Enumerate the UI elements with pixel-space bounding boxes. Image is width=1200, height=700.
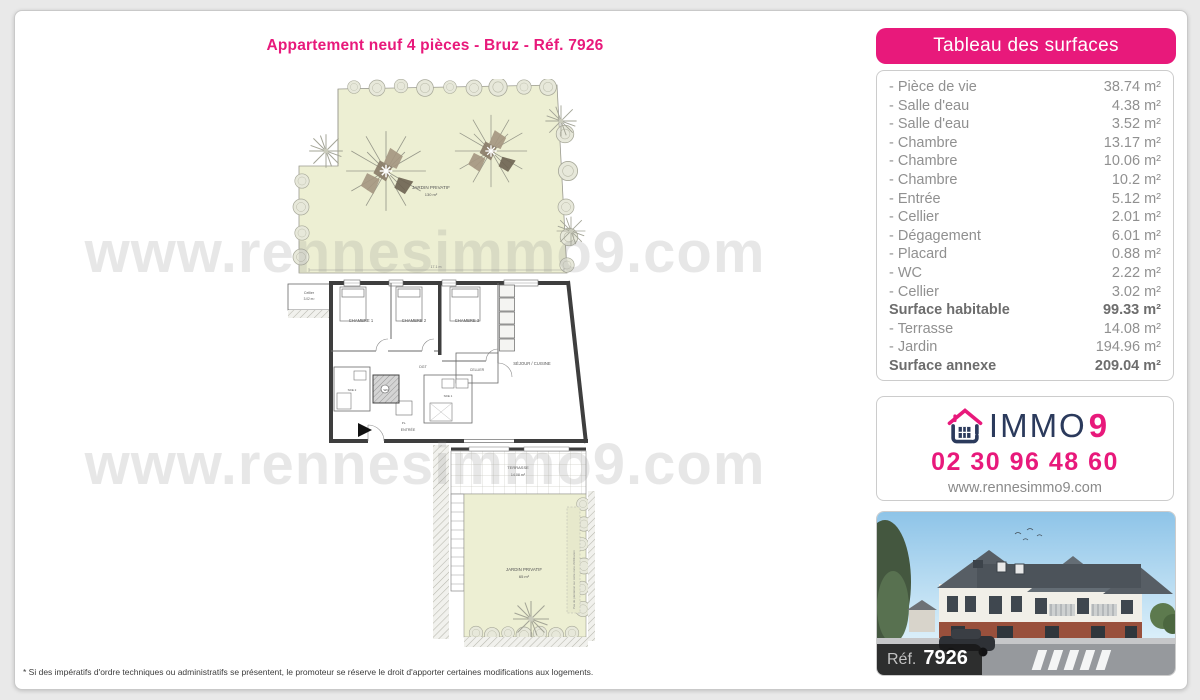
brand-name: IMMO — [989, 407, 1087, 445]
page-card: Appartement neuf 4 pièces - Bruz - Réf. … — [14, 10, 1188, 690]
plan-walkway — [433, 445, 449, 639]
surface-row-label: - Cellier — [889, 208, 939, 227]
surfaces-list: - Pièce de vie38.74 m²- Salle d'eau4.38 … — [889, 78, 1161, 376]
contact-card: IMMO 9 02 30 96 48 60 www.rennesimmo9.co… — [876, 396, 1174, 501]
room-label-entree: ENTRÉE — [401, 427, 416, 432]
garden-note-vertical: Pas de plantation sur cette zone d'infil… — [572, 550, 576, 609]
cellier-ext-area: 3.02 m² — [304, 297, 315, 301]
surface-row-label: - Placard — [889, 245, 947, 264]
surface-row: - Jardin194.96 m² — [889, 338, 1161, 357]
surface-row-label: - Cellier — [889, 283, 939, 302]
surface-row: - Chambre10.06 m² — [889, 152, 1161, 171]
surface-row-value: 0.88 m² — [1112, 245, 1161, 264]
surface-row-value: 2.01 m² — [1112, 208, 1161, 227]
surface-row-value: 3.02 m² — [1112, 283, 1161, 302]
surface-row-value: 2.22 m² — [1112, 264, 1161, 283]
surface-row-label: - Terrasse — [889, 320, 953, 339]
terrace-label: TERRASSE — [507, 465, 529, 470]
surface-row: Surface annexe209.04 m² — [889, 357, 1161, 376]
garden-top-label: JARDIN PRIVATIF — [412, 185, 450, 190]
surface-row: - Pièce de vie38.74 m² — [889, 78, 1161, 97]
room-label-chambre3: CHAMBRE 3 — [455, 318, 480, 323]
surface-row-label: - Entrée — [889, 190, 941, 209]
surfaces-header: Tableau des surfaces — [876, 28, 1176, 64]
ref-badge: Réf. 7926 — [877, 644, 982, 675]
room-label-placard: PL. — [402, 421, 407, 425]
surface-row-value: 3.52 m² — [1112, 115, 1161, 134]
surface-row: - Placard0.88 m² — [889, 245, 1161, 264]
garden-dim: 17.1 m — [431, 265, 442, 269]
terrace-area: 14.08 m² — [511, 473, 526, 477]
surface-row-label: Surface annexe — [889, 357, 996, 376]
room-label-wc: WC — [384, 388, 390, 392]
brand-logo: IMMO 9 — [877, 405, 1173, 447]
plan-garden-top: JARDIN PRIVATIF 130 m² 17.1 m — [293, 79, 585, 273]
surface-row-value: 10.06 m² — [1104, 152, 1161, 171]
garden-top-area: 130 m² — [425, 192, 438, 197]
surface-row-value: 10.2 m² — [1112, 171, 1161, 190]
building-photo: Réf. 7926 — [876, 511, 1176, 676]
surface-row: - Chambre10.2 m² — [889, 171, 1161, 190]
surface-row: - Terrasse14.08 m² — [889, 320, 1161, 339]
plan-apartment: CHAMBRE 1 CHAMBRE 2 CHAMBRE 3 DGT CELLIE… — [329, 280, 588, 443]
plan-cellier-ext: Cellier 3.02 m² — [288, 284, 331, 318]
phone-number[interactable]: 02 30 96 48 60 — [877, 448, 1173, 477]
surface-row-label: - Chambre — [889, 152, 958, 171]
surface-row-label: - Salle d'eau — [889, 97, 969, 116]
surface-row-value: 99.33 m² — [1103, 301, 1161, 320]
house-logo-icon — [943, 405, 987, 447]
surface-row-value: 4.38 m² — [1112, 97, 1161, 116]
surface-row-label: - WC — [889, 264, 922, 283]
surface-row-label: - Chambre — [889, 134, 958, 153]
surface-row: - Salle d'eau3.52 m² — [889, 115, 1161, 134]
page-title: Appartement neuf 4 pièces - Bruz - Réf. … — [15, 37, 855, 55]
room-label-sde2: SDE 2 — [348, 388, 357, 392]
room-label-cellier: CELLIER — [470, 368, 485, 372]
plan-stairs — [451, 494, 464, 591]
surface-row-value: 38.74 m² — [1104, 78, 1161, 97]
plan-garden-bottom: JARDIN PRIVATIF 65 m² Pas de plantation … — [464, 491, 595, 647]
room-label-dgt: DGT — [419, 365, 427, 369]
ref-label: Réf. — [887, 651, 916, 669]
garden-bottom-label: JARDIN PRIVATIF — [506, 567, 543, 572]
surface-row-value: 209.04 m² — [1095, 357, 1161, 376]
room-label-chambre1: CHAMBRE 1 — [349, 318, 374, 323]
surface-row-label: - Dégagement — [889, 227, 981, 246]
surface-row-label: - Pièce de vie — [889, 78, 977, 97]
ref-number: 7926 — [923, 647, 968, 670]
surface-row-value: 5.12 m² — [1112, 190, 1161, 209]
surface-row-value: 6.01 m² — [1112, 227, 1161, 246]
garden-bottom-area: 65 m² — [519, 574, 530, 579]
room-label-sde1: SDE 1 — [444, 394, 453, 398]
floor-plan: JARDIN PRIVATIF 130 m² 17.1 m Cellier 3.… — [284, 79, 614, 664]
surface-row-label: - Chambre — [889, 171, 958, 190]
surface-row: - Salle d'eau4.38 m² — [889, 97, 1161, 116]
surface-row: Surface habitable99.33 m² — [889, 301, 1161, 320]
surface-row: - Dégagement6.01 m² — [889, 227, 1161, 246]
cellier-ext-label: Cellier — [304, 291, 315, 295]
surfaces-table: - Pièce de vie38.74 m²- Salle d'eau4.38 … — [876, 70, 1174, 381]
room-label-sejour: SÉJOUR / CUISINE — [513, 361, 551, 366]
footnote: * Si des impératifs d'ordre techniques o… — [23, 667, 593, 677]
room-label-chambre2: CHAMBRE 2 — [402, 318, 427, 323]
plan-terrace: TERRASSE 14.08 m² — [451, 447, 586, 494]
surface-row-label: - Jardin — [889, 338, 937, 357]
surface-row: - Cellier2.01 m² — [889, 208, 1161, 227]
brand-digit: 9 — [1089, 407, 1107, 445]
surface-row: - Entrée5.12 m² — [889, 190, 1161, 209]
website-link[interactable]: www.rennesimmo9.com — [877, 480, 1173, 496]
surface-row-value: 194.96 m² — [1096, 338, 1161, 357]
surface-row: - Chambre13.17 m² — [889, 134, 1161, 153]
surface-row: - Cellier3.02 m² — [889, 283, 1161, 302]
surface-row-value: 14.08 m² — [1104, 320, 1161, 339]
surface-row-value: 13.17 m² — [1104, 134, 1161, 153]
surface-row-label: - Salle d'eau — [889, 115, 969, 134]
surface-row: - WC2.22 m² — [889, 264, 1161, 283]
surface-row-label: Surface habitable — [889, 301, 1010, 320]
